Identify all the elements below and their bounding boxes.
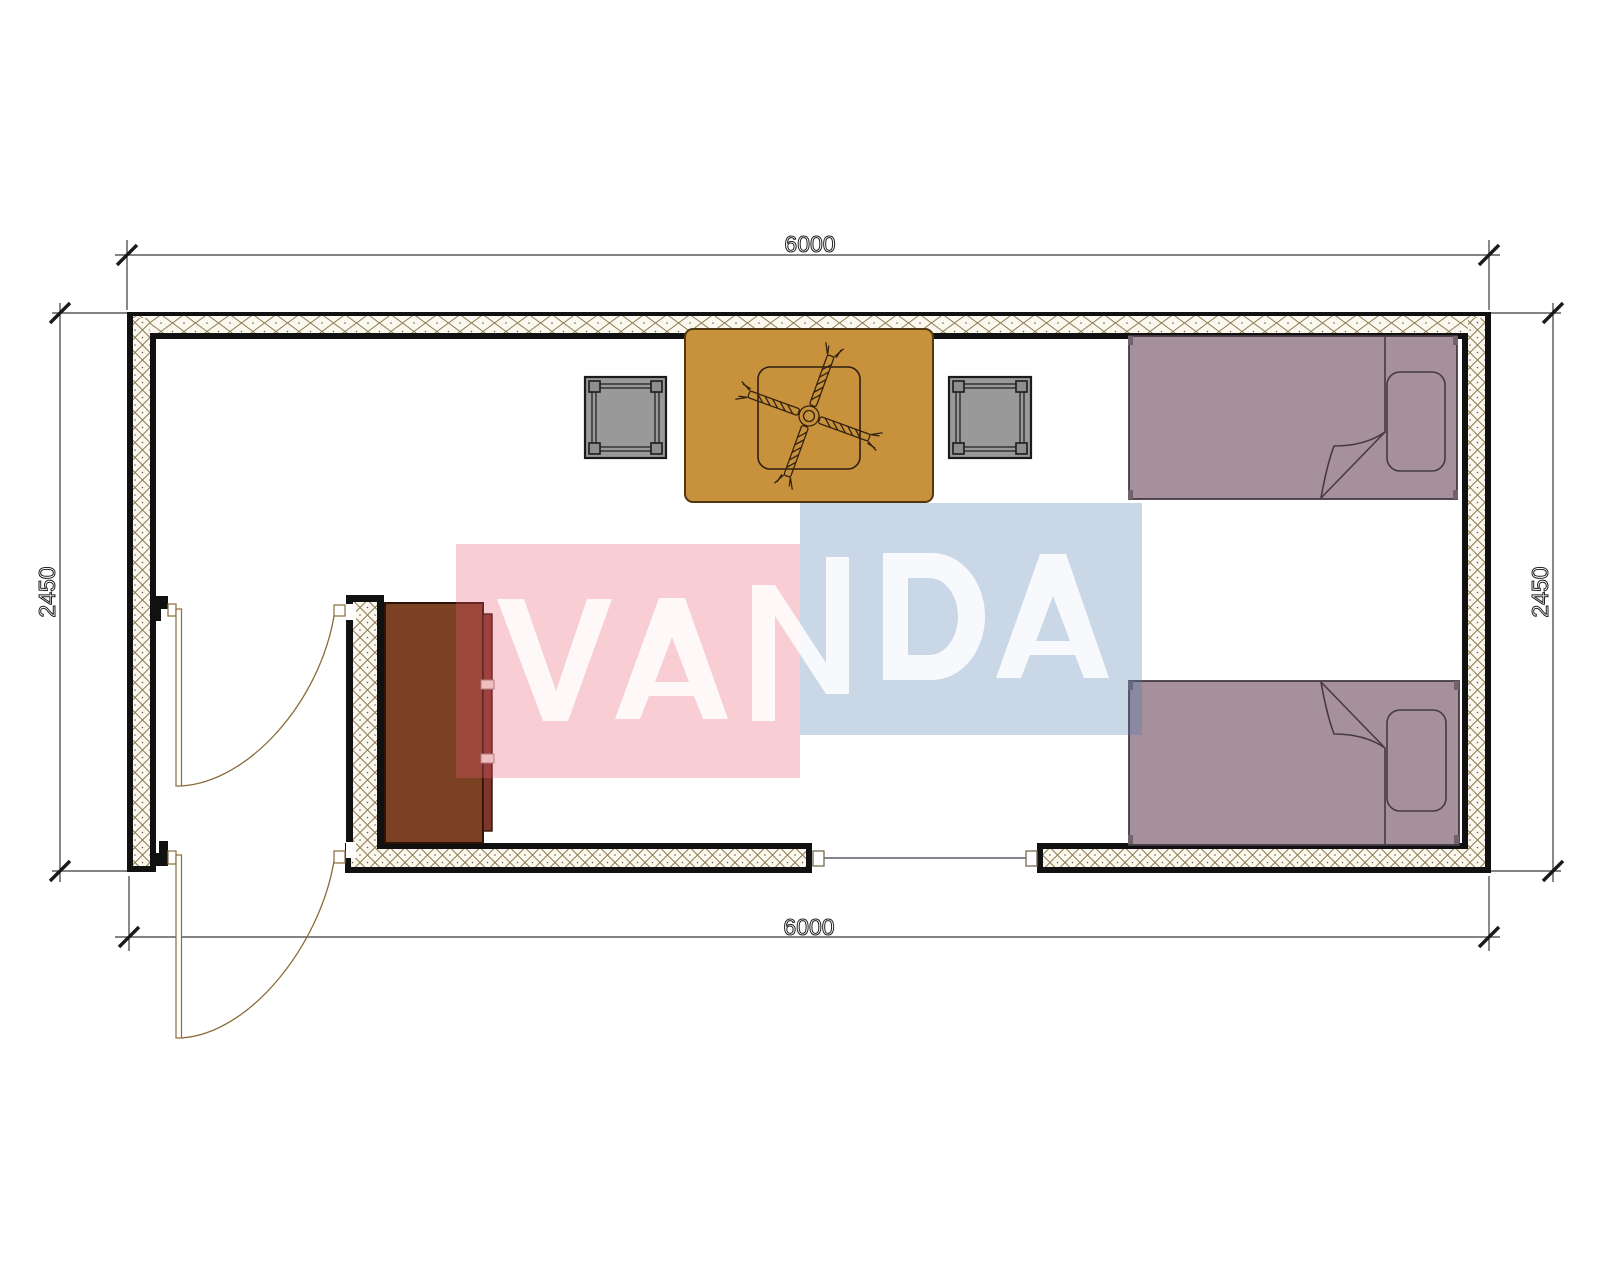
- svg-text:2450: 2450: [1527, 566, 1553, 617]
- svg-text:6000: 6000: [784, 231, 835, 257]
- svg-text:2450: 2450: [34, 566, 60, 617]
- svg-text:6000: 6000: [783, 914, 834, 940]
